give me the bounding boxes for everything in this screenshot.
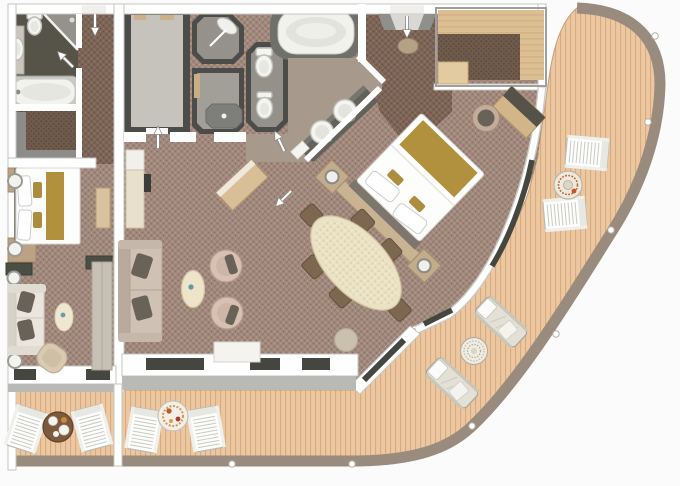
guest-entry-opening (82, 6, 106, 14)
coffee-table (182, 271, 205, 308)
accent-cushion (33, 182, 42, 198)
table-lamp (8, 174, 22, 188)
side-table (8, 272, 21, 285)
guest-sofa (8, 284, 46, 355)
guest-cabinet-tall (96, 188, 110, 228)
bidet (257, 92, 273, 119)
armchair-2 (211, 297, 243, 329)
pillow (17, 210, 32, 241)
side-table (8, 354, 22, 368)
round-pouf (335, 329, 358, 352)
guest-rug-table (55, 303, 73, 331)
floor-plan-image (0, 0, 680, 486)
lounger-side-table (461, 338, 488, 365)
living-window-1 (146, 358, 204, 370)
balcony-table-round (554, 171, 582, 199)
guest-corridor-carpet (78, 14, 114, 164)
guest-shower-head (69, 17, 75, 23)
accent-cushion (33, 212, 42, 228)
shower-room (192, 12, 244, 64)
guest-window-1 (14, 369, 36, 380)
wardrobe-top (438, 10, 544, 34)
wardrobe-right (520, 34, 544, 80)
floor-plan-svg (0, 0, 680, 486)
guest-window-2 (86, 369, 110, 380)
guest-toilet (27, 13, 42, 35)
teak-threshold (194, 74, 200, 98)
drain (222, 114, 227, 119)
toilet (256, 48, 273, 77)
walk-in-closet-2 (436, 8, 546, 86)
desk-chair (473, 105, 500, 132)
sideboard (214, 342, 260, 362)
living-window-3 (302, 358, 330, 370)
walk-in-closet-1 (124, 8, 190, 134)
armchair-1 (210, 250, 242, 282)
guest-bathtub (10, 76, 78, 108)
balcony-table-breakfast (43, 412, 73, 442)
balcony-table-mosaic (158, 401, 188, 431)
main-entry-opening (390, 6, 424, 14)
table-lamp (8, 242, 22, 256)
balcony-chair (565, 135, 610, 172)
balcony-chair (543, 196, 588, 233)
living-sofa (118, 240, 162, 342)
steam-room (192, 68, 244, 134)
guest-bed-runner (46, 172, 64, 240)
guest-closet (16, 110, 78, 160)
tv-screen (144, 174, 151, 192)
hall-ottoman (398, 39, 418, 54)
closet-bench (438, 62, 468, 84)
